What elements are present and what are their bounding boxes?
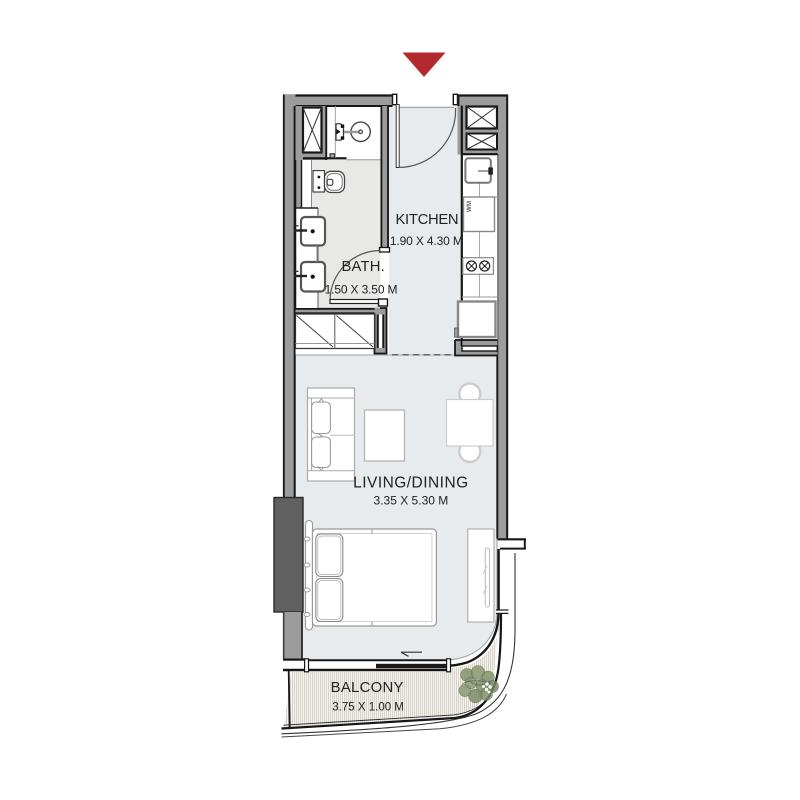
svg-text:LIVING/DINING: LIVING/DINING — [353, 475, 469, 492]
svg-text:3.35 X 5.30 M: 3.35 X 5.30 M — [374, 494, 449, 508]
svg-text:BATH.: BATH. — [341, 259, 384, 275]
svg-text:BALCONY: BALCONY — [331, 680, 404, 696]
svg-text:1.50 X 3.50 M: 1.50 X 3.50 M — [325, 283, 398, 297]
svg-text:WM: WM — [467, 201, 473, 212]
svg-text:3.75 X 1.00 M: 3.75 X 1.00 M — [332, 701, 404, 713]
svg-text:KITCHEN: KITCHEN — [395, 212, 458, 228]
svg-text:1.90 X 4.30 M: 1.90 X 4.30 M — [390, 234, 463, 248]
